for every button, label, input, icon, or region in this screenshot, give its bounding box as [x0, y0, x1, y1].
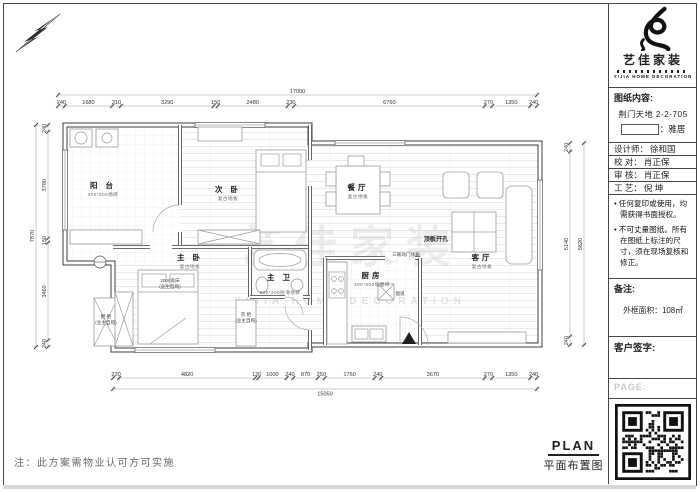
qr-code: [615, 404, 691, 480]
svg-text:3460: 3460: [42, 285, 48, 297]
svg-text:4820: 4820: [181, 372, 193, 378]
room-label-master-bath: 主 卫: [267, 272, 293, 282]
svg-text:1350: 1350: [505, 100, 517, 106]
wardrobe-1: [236, 300, 256, 346]
drawing-content-label: 图纸内容:: [614, 91, 692, 104]
floor-plan-drawing: 艺佳家装 YIJIA HOME DECORATION: [0, 0, 608, 489]
drawing-content-box: 图纸内容: 荆门天地 2-2-705 ：雅居: [609, 88, 697, 143]
svg-text:270: 270: [484, 372, 493, 378]
svg-text:5140: 5140: [564, 238, 570, 250]
svg-text:7870: 7870: [30, 230, 36, 242]
customer-signature-box: 客户签字:: [609, 337, 697, 379]
svg-text:250: 250: [317, 372, 326, 378]
annotation-ceiling-hole: 顶板开孔: [424, 235, 450, 243]
svg-text:300*300防滑地砖: 300*300防滑地砖: [260, 289, 301, 296]
remark-label: 备注:: [614, 282, 692, 295]
designer-row: 设计师： 徐和国: [609, 143, 697, 156]
page-number-box: PAGE:: [609, 379, 697, 399]
drawing-sheet: 艺佳家装 YIJIA HOME DECORATION: [0, 0, 700, 492]
auditor-row: 审 核： 肖正保: [609, 169, 697, 182]
svg-text:300*600墙面砖: 300*600墙面砖: [354, 281, 390, 288]
company-logo: 艺佳家装 YIJIA HOME DECORATION: [609, 3, 697, 88]
page-label: PAGE:: [614, 382, 647, 392]
svg-text:240: 240: [564, 143, 570, 152]
svg-text:240: 240: [42, 124, 48, 133]
svg-text:150: 150: [42, 236, 48, 245]
svg-text:1000: 1000: [266, 372, 278, 378]
sofa: [506, 186, 532, 264]
room-label-balcony: 阳 台: [90, 180, 116, 190]
svg-text:240: 240: [57, 100, 66, 106]
svg-text:(业主自购): (业主自购): [235, 317, 257, 324]
svg-text:240: 240: [564, 336, 570, 345]
svg-text:1760: 1760: [343, 372, 355, 378]
notice-item: • 不可丈量图纸。所有在图纸上标注的尺寸，须在现场复核和修正。: [614, 224, 692, 268]
property-approval-note: 注：此方案需物业认可方可实施: [14, 454, 175, 469]
svg-text:270: 270: [484, 100, 493, 106]
svg-text:复古地板: 复古地板: [180, 263, 200, 270]
remark-box: 备注: 外框面积：108㎡: [609, 279, 697, 337]
sheet-title-en: PLAN: [548, 438, 599, 456]
svg-text:870: 870: [301, 372, 310, 378]
logo-mark-icon: [624, 5, 682, 51]
svg-text:(业主自购): (业主自购): [95, 319, 117, 326]
svg-text:6760: 6760: [383, 100, 395, 106]
sheet-title-zh: 平面布置图: [544, 460, 604, 472]
armchair: [443, 172, 469, 198]
title-block: 艺佳家装 YIJIA HOME DECORATION 图纸内容: 荆门天地 2-…: [608, 3, 697, 484]
sink: [352, 326, 386, 342]
room-label-dining: 餐厅: [347, 182, 369, 192]
frame-area-value: 外框面积：108㎡: [614, 305, 692, 316]
svg-text:1680: 1680: [82, 100, 94, 106]
room-label-living: 客厅: [471, 252, 493, 262]
desk: [198, 127, 242, 141]
section-marker-icon: [94, 256, 106, 268]
svg-text:310: 310: [112, 100, 121, 106]
svg-text:复古地板: 复古地板: [348, 193, 368, 200]
svg-text:3780: 3780: [42, 179, 48, 191]
svg-text:240: 240: [373, 372, 382, 378]
svg-text:(业主自购): (业主自购): [159, 283, 181, 290]
room-label-master-bedroom: 主 卧: [177, 252, 203, 262]
svg-text:230: 230: [286, 100, 295, 106]
svg-text:220: 220: [111, 372, 120, 378]
single-bed: [256, 150, 306, 232]
room-label-second-bedroom: 次 卧: [215, 184, 241, 194]
svg-text:2480: 2480: [246, 100, 258, 106]
qr-code-box: [609, 399, 697, 484]
project-name: 荆门天地 2-2-705: [614, 108, 692, 120]
annotation-door-box: 三联动门体箱: [392, 251, 420, 258]
svg-text:300*300地砖: 300*300地砖: [88, 191, 119, 198]
svg-text:15050: 15050: [317, 392, 333, 398]
svg-text:1350: 1350: [505, 372, 517, 378]
svg-text:衣 柜: 衣 柜: [241, 311, 252, 318]
svg-text:烟道: 烟道: [395, 290, 405, 297]
logo-dots-divider: [617, 70, 689, 73]
armchair: [477, 172, 503, 198]
sheet-title: PLAN 平面布置图: [540, 437, 607, 474]
svg-text:240: 240: [529, 372, 538, 378]
checker-row: 校 对： 肖正保: [609, 156, 697, 169]
svg-text:3670: 3670: [427, 372, 439, 378]
svg-text:复古地板: 复古地板: [218, 195, 238, 202]
tv-cabinet: [448, 332, 526, 343]
svg-text:3290: 3290: [161, 100, 173, 106]
svg-text:鞋 柜: 鞋 柜: [101, 313, 112, 320]
logo-company-subtitle: YIJIA HOME DECORATION: [614, 74, 693, 79]
svg-text:120: 120: [252, 372, 261, 378]
svg-text:5620: 5620: [578, 238, 584, 250]
room-label-kitchen: 厨房: [362, 270, 383, 280]
north-arrow-icon: [16, 14, 60, 52]
notice-item: • 任何复印或使用，均需获得书面授权。: [614, 198, 692, 220]
svg-text:240: 240: [42, 339, 48, 348]
svg-text:复古地板: 复古地板: [472, 263, 492, 270]
redacted-name-box: [621, 124, 659, 135]
svg-text:240: 240: [529, 100, 538, 106]
project-style: ：雅居: [660, 123, 686, 135]
svg-text:2000宽床: 2000宽床: [160, 277, 180, 284]
kitchen-counter: [327, 262, 347, 344]
copyright-notices: • 任何复印或使用，均需获得书面授权。 • 不可丈量图纸。所有在图纸上标注的尺寸…: [609, 195, 697, 279]
bathtub: [254, 250, 306, 270]
svg-text:17000: 17000: [290, 89, 306, 95]
signature-label: 客户签字:: [614, 343, 655, 354]
svg-text:240: 240: [285, 372, 294, 378]
craft-row: 工 艺： 倪 坤: [609, 182, 697, 195]
svg-text:150: 150: [211, 100, 220, 106]
logo-company-name: 艺佳家装: [623, 51, 683, 68]
